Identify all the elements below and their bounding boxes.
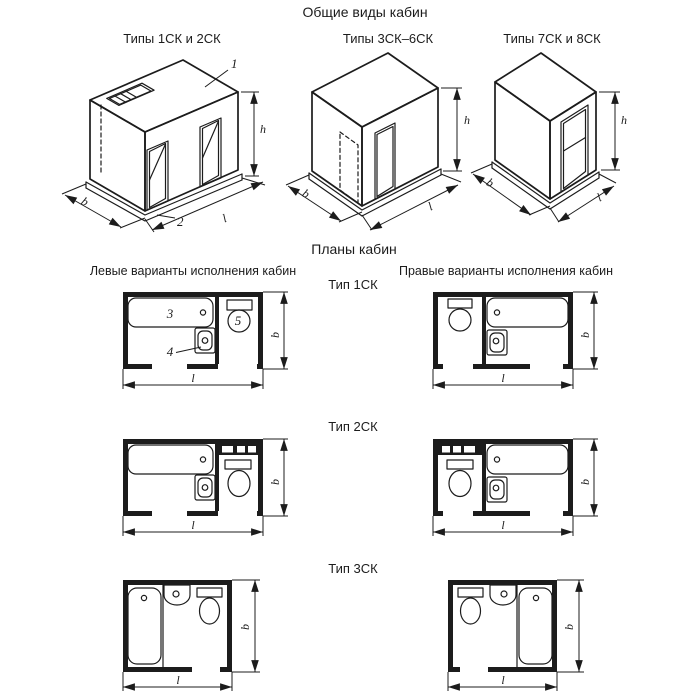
dim-label-l: l bbox=[501, 518, 505, 532]
dim-label-l: l bbox=[191, 518, 195, 532]
bathtub-shape bbox=[487, 445, 568, 474]
washbasin-shape bbox=[164, 585, 190, 605]
dim-label-b: b bbox=[268, 332, 282, 338]
vent-duct-block bbox=[438, 443, 482, 455]
dim-length-l: l bbox=[433, 516, 573, 536]
base-slab bbox=[86, 174, 242, 215]
dim-length-l: l bbox=[123, 672, 232, 691]
hidden-side-door bbox=[340, 132, 358, 203]
toilet-shape bbox=[448, 299, 472, 331]
right-variants-title: Правые варианты исполнения кабин bbox=[399, 264, 613, 278]
dim-label-b: b bbox=[578, 479, 592, 485]
callout-washbasin-number: 4 bbox=[167, 344, 174, 359]
partition-wall bbox=[482, 443, 486, 511]
dim-length-l: l bbox=[550, 174, 616, 222]
dim-height-h: h bbox=[241, 92, 266, 176]
plan-type-3sk-label: Тип 3СК bbox=[328, 561, 377, 576]
dim-depth-b: b bbox=[263, 439, 288, 516]
bathtub-shape bbox=[519, 588, 552, 664]
tub-drain bbox=[494, 457, 499, 462]
dim-depth-b: b bbox=[557, 580, 584, 672]
bathtub-shape bbox=[128, 445, 213, 474]
iso-view-types-3sk-6sk: b l h bbox=[280, 50, 480, 240]
door-opening-left bbox=[147, 141, 168, 210]
dim-label-l: l bbox=[501, 371, 505, 385]
washbasin-shape bbox=[487, 330, 507, 355]
door-opening-right bbox=[200, 118, 221, 187]
dim-label-l: l bbox=[176, 673, 180, 687]
toilet-shape bbox=[197, 588, 222, 624]
cabin-box bbox=[492, 53, 599, 209]
iso-view-types-7sk-8sk: b l h bbox=[468, 50, 658, 235]
bathtub-shape bbox=[128, 588, 161, 664]
dim-length-l: l bbox=[448, 672, 557, 691]
dim-label-b: b bbox=[484, 175, 497, 190]
dim-height-h: h bbox=[599, 92, 627, 170]
iso-view-types-1sk-2sk: 1 2 b l h bbox=[58, 48, 293, 238]
vent-duct-block bbox=[219, 443, 258, 455]
tub-drain bbox=[200, 457, 205, 462]
dim-label-l: l bbox=[191, 371, 195, 385]
dim-length-l: l bbox=[123, 369, 263, 389]
dim-label-l: l bbox=[426, 199, 436, 213]
bathtub-shape bbox=[487, 298, 568, 327]
dim-depth-b: b bbox=[232, 580, 260, 672]
dim-label-b: b bbox=[562, 624, 576, 630]
plan-1sk-left: 3 4 5 b l bbox=[98, 285, 298, 397]
toilet-shape bbox=[225, 460, 251, 497]
plan-2sk-right: b l bbox=[408, 432, 608, 544]
dim-label-l: l bbox=[501, 673, 505, 687]
cabin-box bbox=[86, 60, 242, 221]
plans-title: Планы кабин bbox=[311, 241, 397, 257]
left-variants-title: Левые варианты исполнения кабин bbox=[90, 264, 296, 278]
walls bbox=[123, 292, 263, 369]
partition-wall bbox=[482, 296, 486, 364]
callout-washbasin: 4 bbox=[167, 344, 201, 359]
dim-depth-b: b bbox=[263, 292, 288, 369]
dim-label-b: b bbox=[578, 332, 592, 338]
walls bbox=[448, 580, 557, 672]
toilet-shape bbox=[458, 588, 483, 624]
dim-length-l: l bbox=[145, 178, 265, 232]
dim-label-b: b bbox=[238, 624, 252, 630]
dim-length-l: l bbox=[433, 369, 573, 389]
dim-depth-b: b bbox=[62, 184, 145, 228]
dim-label-l: l bbox=[220, 211, 229, 225]
plan-2sk-left: b l bbox=[98, 432, 298, 544]
walls bbox=[123, 580, 232, 672]
dim-label-b: b bbox=[300, 186, 312, 201]
tub-drain bbox=[200, 310, 205, 315]
washbasin-shape bbox=[487, 477, 507, 502]
dim-depth-b: b bbox=[573, 439, 598, 516]
callout-bathtub-number: 3 bbox=[166, 306, 174, 321]
plan-3sk-left: b l bbox=[98, 570, 298, 700]
washbasin-shape bbox=[195, 328, 215, 353]
door-opening bbox=[561, 105, 588, 192]
tub-drain bbox=[494, 310, 499, 315]
roof-vent-hatch-icon bbox=[107, 83, 154, 105]
dim-label-h: h bbox=[260, 122, 266, 136]
standard-figure-page: Общие виды кабин Типы 1СК и 2СК Типы 3СК… bbox=[0, 0, 700, 700]
washbasin-shape bbox=[195, 475, 215, 500]
plan-1sk-right: b l bbox=[408, 285, 608, 397]
callout-toilet-number: 5 bbox=[235, 313, 242, 328]
subtitle-types-3sk-6sk: Типы 3СК–6СК bbox=[343, 31, 433, 46]
subtitle-types-1sk-2sk: Типы 1СК и 2СК bbox=[123, 31, 221, 46]
dim-height-h: h bbox=[441, 88, 470, 171]
toilet-shape bbox=[447, 460, 473, 497]
dim-label-h: h bbox=[621, 113, 627, 127]
plan-type-1sk-label: Тип 1СК bbox=[328, 277, 377, 292]
general-views-title: Общие виды кабин bbox=[302, 4, 427, 20]
cabin-box bbox=[309, 53, 441, 216]
callout-cabin-number: 1 bbox=[231, 56, 238, 71]
door-opening bbox=[375, 123, 395, 199]
plan-3sk-right: b l bbox=[408, 570, 608, 700]
tub-drain bbox=[533, 595, 538, 600]
washbasin-shape bbox=[490, 585, 516, 605]
partition-wall bbox=[215, 297, 219, 364]
dim-label-b: b bbox=[79, 194, 91, 209]
subtitle-types-7sk-8sk: Типы 7СК и 8СК bbox=[503, 31, 601, 46]
dim-depth-b: b bbox=[573, 292, 598, 369]
plan-type-2sk-label: Тип 2СК bbox=[328, 419, 377, 434]
partition-wall bbox=[215, 444, 219, 511]
dim-length-l: l bbox=[123, 516, 263, 536]
tub-drain bbox=[141, 595, 146, 600]
dim-label-b: b bbox=[268, 479, 282, 485]
